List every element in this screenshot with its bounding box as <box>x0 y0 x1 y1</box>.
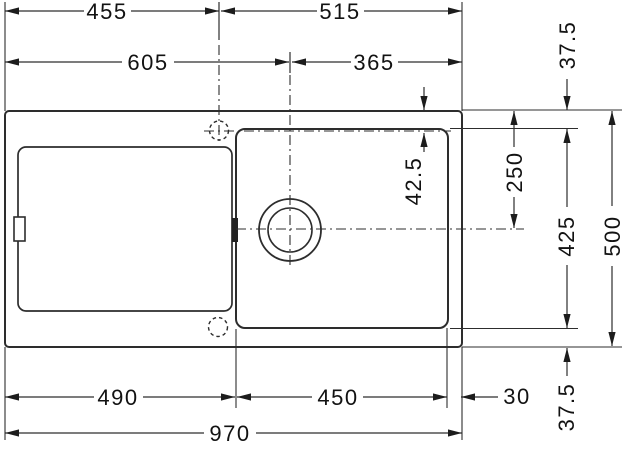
technical-drawing-canvas: 455 515 605 365 490 450 30 970 37.5 250 <box>0 0 625 458</box>
dim-label-490: 490 <box>97 385 138 410</box>
sink-dimension-diagram: 455 515 605 365 490 450 30 970 37.5 250 <box>0 0 625 458</box>
dim-row-455-515: 455 515 <box>5 0 462 40</box>
dim-label-30: 30 <box>503 384 530 409</box>
dim-row-605-365: 605 365 <box>5 50 462 75</box>
dim-label-250: 250 <box>502 151 527 192</box>
dim-label-365: 365 <box>353 50 394 75</box>
dim-label-42_5: 42.5 <box>401 157 426 206</box>
dim-label-970: 970 <box>209 421 250 446</box>
dim-label-455: 455 <box>86 0 127 24</box>
dim-label-500: 500 <box>600 215 625 256</box>
dim-row-490-450-30: 490 450 30 <box>5 384 531 410</box>
dim-label-515: 515 <box>319 0 360 24</box>
sink-outlines <box>5 111 462 347</box>
dim-label-450: 450 <box>317 385 358 410</box>
drainboard-outline <box>18 147 232 311</box>
dim-label-605: 605 <box>127 50 168 75</box>
overflow-tab <box>232 218 238 242</box>
dim-label-37_5-top: 37.5 <box>555 21 580 70</box>
dim-col-right: 37.5 250 425 500 37.5 <box>502 21 625 432</box>
dim-row-970: 970 <box>5 421 462 446</box>
dim-label-37_5-bottom: 37.5 <box>554 383 579 432</box>
drainboard-edge-tab <box>14 217 25 241</box>
dim-label-425: 425 <box>554 215 579 256</box>
